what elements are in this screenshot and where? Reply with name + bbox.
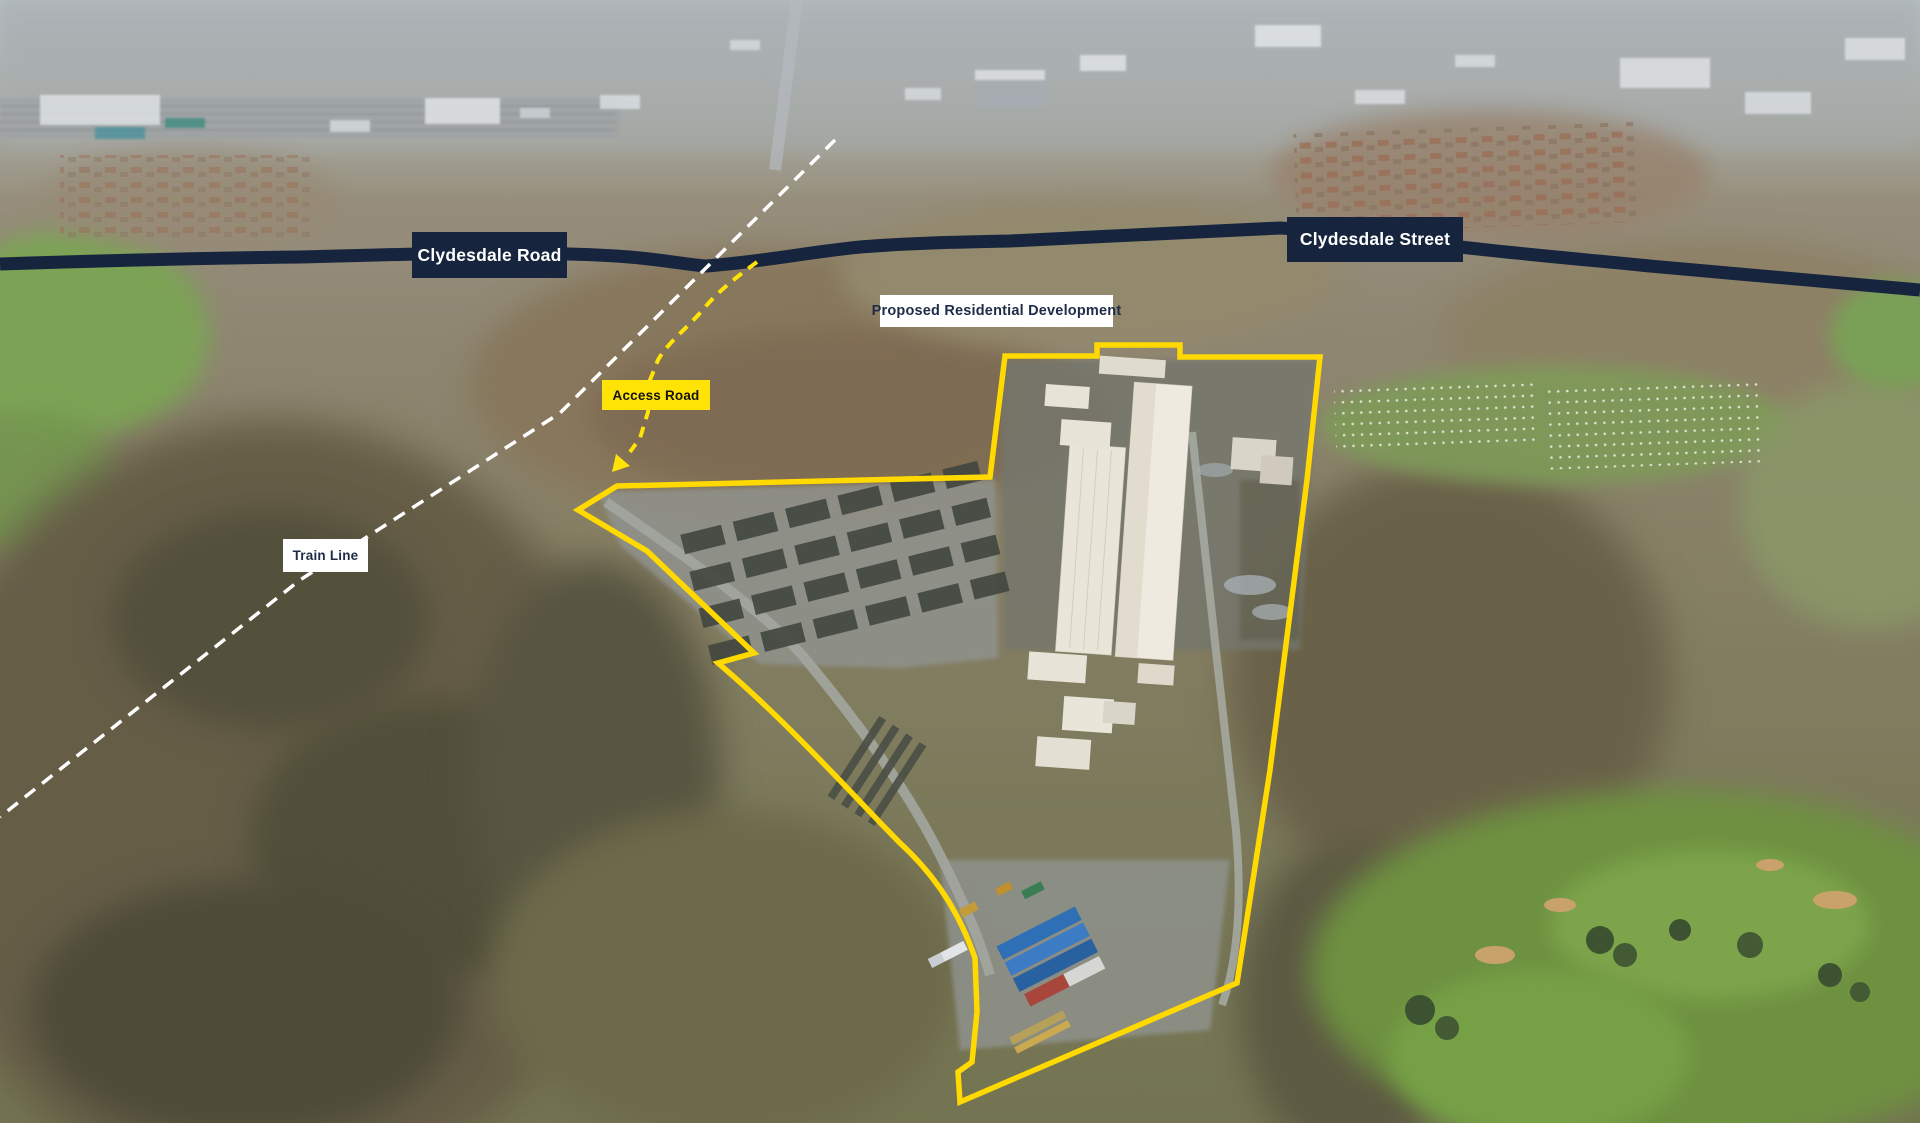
main-road-top [775,0,797,170]
access-road-arrowhead [612,454,630,472]
clydesdale-road-label: Clydesdale Road [412,232,567,278]
aerial-photo: Clydesdale Road Clydesdale Street Propos… [0,0,1920,1123]
proposed-development-label: Proposed Residential Development [880,295,1113,327]
clydesdale-street-label: Clydesdale Street [1287,217,1463,262]
housing-rows-left [60,155,310,240]
golf-details [1405,859,1870,1040]
access-road-label: Access Road [602,380,710,410]
cemetery [1334,377,1762,470]
access-road-dashed [630,262,757,452]
train-line-label: Train Line [283,539,368,572]
